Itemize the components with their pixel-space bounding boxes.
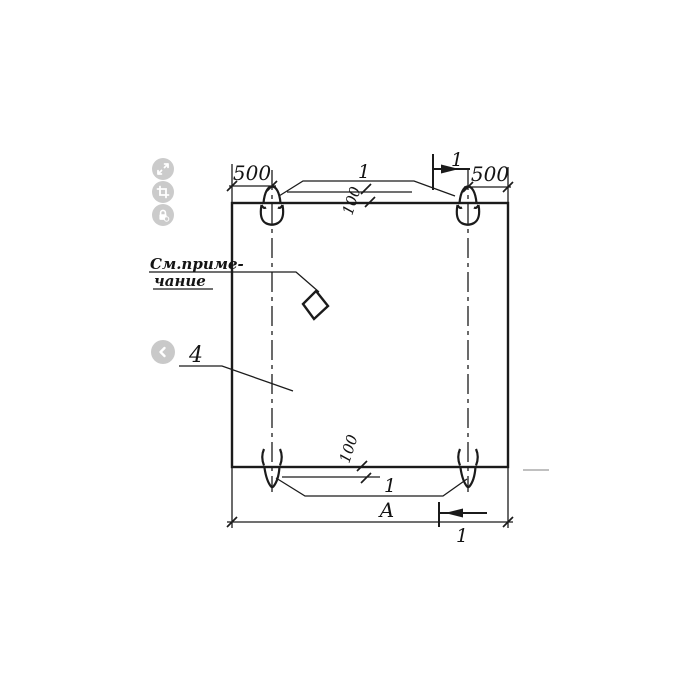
- dimension-overall-width: А: [227, 467, 513, 528]
- note-callout: См.приме- чание: [149, 255, 328, 319]
- loop-centerlines: [272, 170, 468, 492]
- openwork-diamond-symbol: [303, 291, 328, 319]
- section-mark-bottom-label: 1: [456, 525, 468, 547]
- loop-callout-bottom: 1: [276, 475, 467, 497]
- dimension-500-right: 500: [463, 162, 513, 203]
- section-mark-bottom: 1: [439, 502, 487, 547]
- section-mark-top: 1: [433, 149, 470, 190]
- note-line1: См.приме-: [150, 255, 244, 273]
- loop-callout-top: 1: [279, 161, 455, 196]
- dimension-100-top: 100: [339, 184, 375, 217]
- dim-500-right-label: 500: [471, 162, 509, 186]
- dim-100-bottom-label: 100: [336, 432, 362, 465]
- dim-100-top-label: 100: [339, 184, 365, 217]
- overall-width-label: А: [377, 498, 394, 522]
- section-mark-top-label: 1: [451, 149, 463, 171]
- note-line2: чание: [154, 272, 206, 290]
- loop-callout-bottom-label: 1: [384, 475, 396, 497]
- dimension-500-left: 500: [227, 161, 277, 203]
- dim-500-left-label: 500: [233, 161, 271, 185]
- panel-outline: [232, 203, 549, 470]
- panel-callout-label: 4: [188, 343, 203, 368]
- dimension-100-bottom: 100: [282, 432, 380, 483]
- technical-drawing: 500 500 1 100 1: [0, 0, 700, 700]
- loop-callout-top-label: 1: [358, 161, 370, 183]
- panel-callout: 4: [179, 343, 293, 391]
- image-viewer-page: 500 500 1 100 1: [0, 0, 700, 700]
